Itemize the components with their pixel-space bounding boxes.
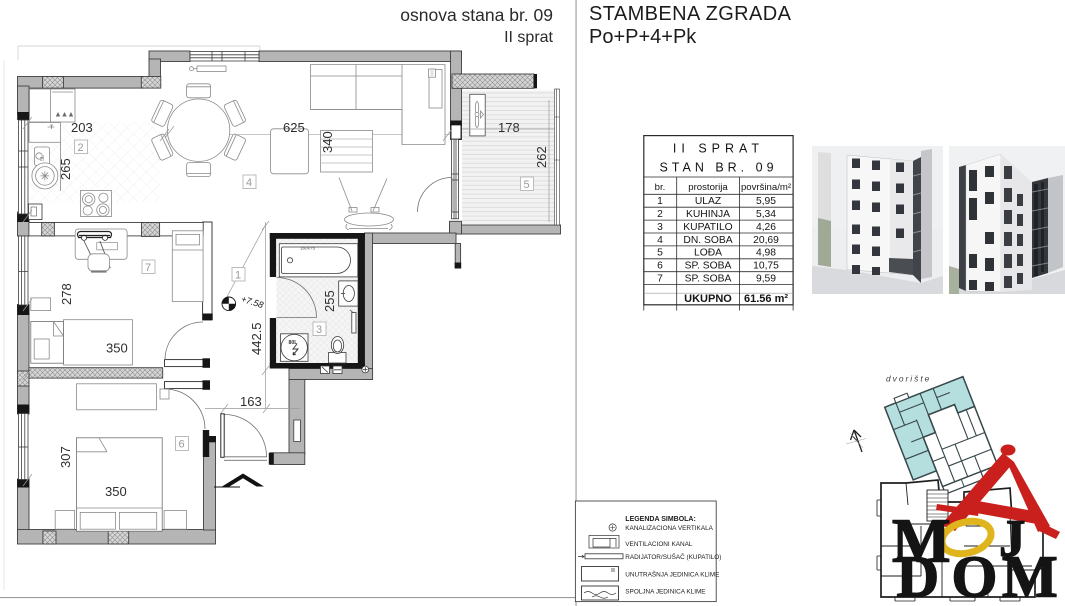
svg-text:7: 7 — [657, 274, 663, 285]
svg-text:255: 255 — [322, 290, 337, 312]
svg-text:KUPATILO: KUPATILO — [683, 222, 732, 233]
svg-text:STAN BR. 09: STAN BR. 09 — [659, 161, 777, 175]
svg-text:5,34: 5,34 — [756, 209, 776, 220]
svg-text:625: 625 — [283, 120, 305, 135]
svg-text:SPOLJNA JEDINICA KLIME: SPOLJNA JEDINICA KLIME — [625, 589, 705, 596]
svg-text:3: 3 — [657, 222, 663, 233]
svg-text:UNUTRAŠNJA JEDINICA KLIME: UNUTRAŠNJA JEDINICA KLIME — [625, 569, 719, 578]
svg-text:O: O — [952, 544, 998, 606]
svg-text:20,69: 20,69 — [753, 235, 779, 246]
svg-text:DN. SOBA: DN. SOBA — [683, 235, 732, 246]
svg-text:KUHINJA: KUHINJA — [686, 209, 730, 220]
svg-text:1: 1 — [235, 269, 241, 281]
svg-text:61.56 m²: 61.56 m² — [744, 293, 788, 305]
svg-text:5,95: 5,95 — [756, 196, 776, 207]
svg-text:442.5: 442.5 — [249, 322, 264, 355]
svg-text:ULAZ: ULAZ — [695, 196, 721, 207]
svg-text:265: 265 — [58, 158, 73, 180]
svg-text:2: 2 — [78, 142, 84, 154]
svg-text:163: 163 — [240, 394, 262, 409]
svg-text:5L: 5L — [40, 155, 46, 161]
svg-text:350: 350 — [106, 341, 128, 356]
svg-text:4: 4 — [246, 177, 252, 189]
svg-text:5: 5 — [657, 248, 663, 259]
svg-text:9,59: 9,59 — [756, 274, 776, 285]
svg-text:178: 178 — [498, 120, 520, 135]
svg-text:278: 278 — [59, 283, 74, 305]
svg-text:6: 6 — [657, 261, 663, 272]
svg-text:5: 5 — [524, 179, 530, 191]
svg-text:LEGENDA SIMBOLA:: LEGENDA SIMBOLA: — [625, 516, 696, 523]
svg-text:2: 2 — [657, 209, 663, 220]
svg-text:80L: 80L — [289, 340, 299, 346]
svg-text:II SPRAT: II SPRAT — [673, 142, 764, 156]
svg-text:D: D — [897, 544, 940, 606]
svg-text:340: 340 — [320, 131, 335, 153]
svg-text:4,98: 4,98 — [756, 248, 776, 259]
svg-text:prostorija: prostorija — [688, 182, 728, 193]
svg-text:350: 350 — [105, 484, 127, 499]
svg-text:+7.58: +7.58 — [240, 294, 265, 310]
svg-text:RADIJATOR/SUŠAČ (KUPATILO): RADIJATOR/SUŠAČ (KUPATILO) — [625, 552, 721, 561]
svg-text:1: 1 — [657, 196, 663, 207]
svg-text:LOĐA: LOĐA — [694, 248, 722, 259]
svg-text:površina/m²: površina/m² — [741, 182, 792, 193]
svg-text:307: 307 — [58, 446, 73, 468]
svg-text:UKUPNO: UKUPNO — [684, 293, 732, 305]
svg-text:160x75: 160x75 — [300, 246, 316, 251]
svg-text:6: 6 — [179, 438, 185, 450]
svg-text:4: 4 — [657, 235, 663, 246]
svg-text:10,75: 10,75 — [753, 261, 779, 272]
svg-text:SP. SOBA: SP. SOBA — [685, 261, 732, 272]
svg-text:203: 203 — [71, 120, 93, 135]
svg-text:3: 3 — [316, 324, 322, 336]
svg-text:SP. SOBA: SP. SOBA — [685, 274, 732, 285]
svg-text:br.: br. — [655, 182, 666, 193]
svg-text:VENTILACIONI KANAL: VENTILACIONI KANAL — [625, 541, 693, 548]
svg-text:4,26: 4,26 — [756, 222, 776, 233]
svg-text:KANALIZACIONA VERTIKALA: KANALIZACIONA VERTIKALA — [625, 525, 713, 532]
svg-text:262: 262 — [534, 146, 549, 168]
svg-text:M: M — [1002, 544, 1058, 606]
svg-text:7: 7 — [145, 262, 151, 274]
svg-text:dvorište: dvorište — [886, 374, 931, 384]
